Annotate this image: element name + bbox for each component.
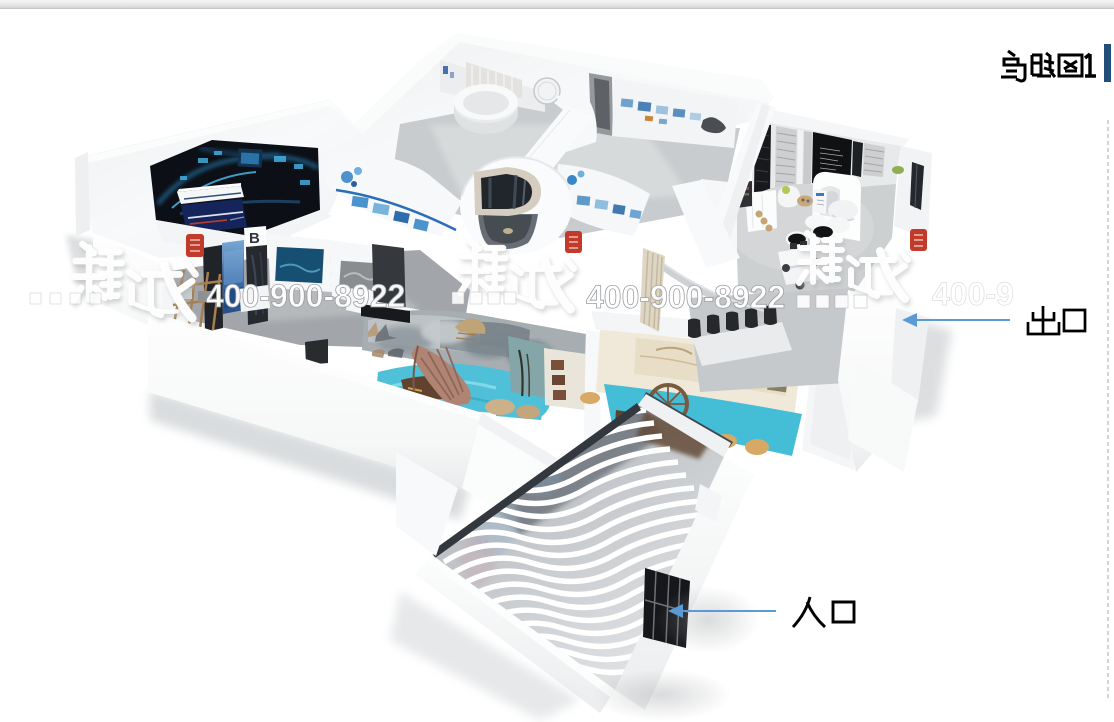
svg-text:B: B xyxy=(249,230,260,247)
svg-text:400-900-8922: 400-900-8922 xyxy=(586,279,785,315)
svg-text:400-900-8922: 400-900-8922 xyxy=(206,278,405,314)
svg-text:400-9: 400-9 xyxy=(932,276,1014,312)
